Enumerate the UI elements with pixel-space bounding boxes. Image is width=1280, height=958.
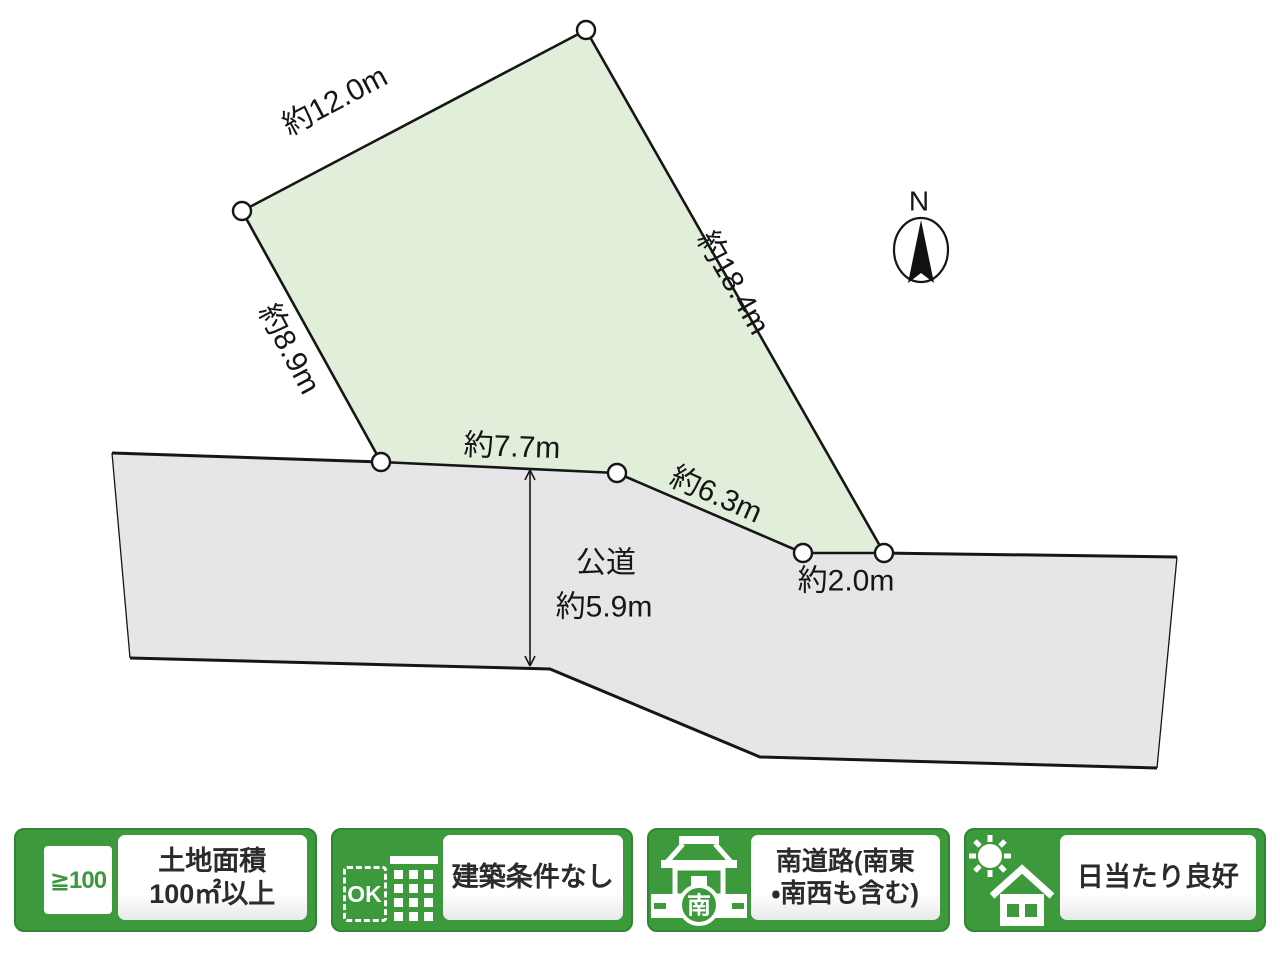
- sun-house-icon: [966, 830, 1056, 930]
- badge-south-road-label: 南道路(南東 ・南西も含む): [751, 835, 940, 920]
- badge-no-build-line1: 建築条件なし: [452, 861, 614, 894]
- badge-south-road-line1: 南道路(南東: [776, 846, 915, 878]
- badge-good-sunlight-line1: 日当たり良好: [1077, 861, 1239, 894]
- badge-good-sunlight: 日当たり良好: [964, 828, 1267, 932]
- badge-land-area-label: 土地面積 100㎡以上: [118, 835, 307, 920]
- road-label-width: 約5.9m: [556, 591, 653, 624]
- min-100sqm-icon: ≧100: [44, 846, 112, 914]
- vertex-top: [577, 21, 595, 39]
- compass-north-label: N: [909, 186, 929, 217]
- badge-no-build-conditions-label: 建築条件なし: [443, 835, 624, 920]
- badge-land-area-line1: 土地面積: [158, 845, 266, 878]
- badge-land-area-line2: 100㎡以上: [149, 878, 275, 911]
- vertex-slope-end: [794, 544, 812, 562]
- compass: N: [894, 186, 948, 284]
- south-kanji: 南: [687, 893, 711, 920]
- vertex-left: [233, 202, 251, 220]
- ok-building-icon: OK: [333, 830, 439, 930]
- building-icon: [390, 852, 438, 928]
- sun-house-svg-icon: [968, 832, 1060, 928]
- vertex-bottom-left: [372, 453, 390, 471]
- vertex-bottom-right: [875, 544, 893, 562]
- edge-label-north-west: 約12.0m: [277, 60, 393, 142]
- edge-label-south-short: 約2.0m: [798, 565, 895, 598]
- feature-badges: ≧100 土地面積 100㎡以上 OK: [14, 828, 1266, 932]
- road-label-name: 公道: [576, 547, 636, 580]
- ok-dashed-box: OK: [343, 866, 387, 922]
- badge-good-sunlight-label: 日当たり良好: [1060, 835, 1257, 920]
- south-road-icon: 南: [649, 830, 747, 930]
- edge-label-south-left: 約7.7m: [463, 429, 561, 465]
- plot-diagram: 約12.0m 約18.4m 約8.9m 約7.7m 約6.3m 約2.0m 公道…: [0, 0, 1280, 958]
- house-road-icon: 南: [651, 832, 747, 928]
- badge-south-road: 南 南道路(南東 ・南西も含む): [647, 828, 950, 932]
- badge-land-area: ≧100 土地面積 100㎡以上: [14, 828, 317, 932]
- land-plot-flyer: 約12.0m 約18.4m 約8.9m 約7.7m 約6.3m 約2.0m 公道…: [0, 0, 1280, 958]
- badge-south-road-line2: ・南西も含む): [772, 878, 920, 910]
- badge-no-build-conditions: OK 建築条件なし: [331, 828, 634, 932]
- vertex-bottom-mid: [608, 464, 626, 482]
